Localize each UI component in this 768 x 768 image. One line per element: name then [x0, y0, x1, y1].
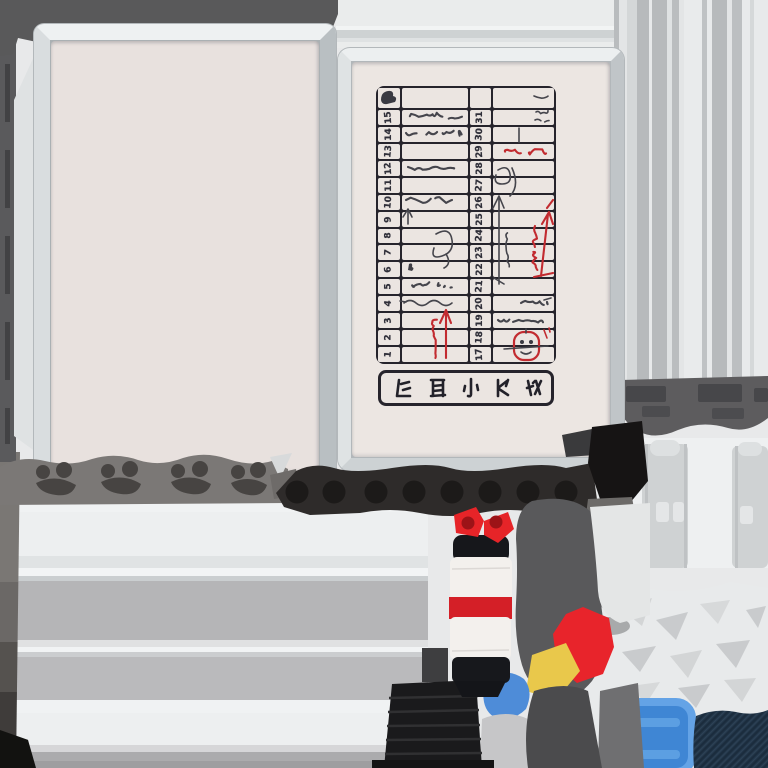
handwriting-scribble	[534, 96, 548, 98]
left-light-wedge	[14, 52, 36, 452]
block-base	[372, 760, 494, 768]
marker-base	[452, 657, 510, 683]
marker-red-band	[449, 597, 512, 619]
handwriting-scribble	[521, 301, 548, 305]
calendar-title-row	[378, 370, 554, 406]
handwriting-scribble	[412, 282, 454, 287]
title-glyphs	[381, 373, 551, 403]
dark-blob-bottom	[526, 686, 602, 768]
red-up-arrow-left	[440, 310, 451, 358]
handwriting-scribble	[536, 111, 548, 114]
marker-body-upper	[450, 557, 512, 601]
handwriting-scribble	[535, 119, 549, 122]
calendar-board: 1531143013291228112710269258247236225214…	[338, 48, 624, 471]
whiteboard-surface	[51, 41, 319, 473]
texture-atlas-canvas: 1531143013291228112710269258247236225214…	[0, 0, 768, 768]
handwriting-scribble	[505, 233, 509, 268]
title-glyph-2	[431, 380, 445, 396]
black-blob	[588, 421, 648, 503]
mid-gray-blob	[598, 683, 644, 768]
marker-body-lower	[450, 617, 511, 659]
wavy-line	[400, 301, 452, 306]
marker-pen	[440, 505, 522, 705]
denim-patch	[693, 710, 768, 768]
small-mark	[408, 263, 414, 271]
loop-doodle-left	[433, 231, 452, 268]
title-glyph-3	[464, 379, 478, 396]
aluminum-pillar-stripes	[610, 0, 768, 392]
calendar-paper: 1531143013291228112710269258247236225214…	[352, 62, 610, 457]
loop-doodle-right	[495, 168, 515, 196]
paw-pad-strip	[0, 445, 290, 515]
red-circled-glyph	[504, 328, 550, 360]
long-up-arrow	[493, 196, 504, 284]
title-glyph-5	[527, 381, 541, 395]
handwriting-scribble	[498, 320, 543, 323]
handwriting-scribble	[406, 197, 452, 203]
trim-dash-line	[5, 64, 10, 444]
title-glyph-1	[397, 380, 410, 396]
handwriting-scribble	[406, 131, 462, 136]
handwriting-scribble	[533, 226, 538, 270]
small-up-arrow	[403, 209, 412, 224]
dash-mark	[544, 298, 551, 300]
handwriting-scribble	[505, 149, 546, 154]
handwriting-scribble	[410, 113, 462, 119]
handwriting-scribble	[432, 320, 437, 358]
marker-tip	[454, 681, 506, 697]
title-glyph-4	[498, 380, 508, 396]
top-panel-bands	[336, 0, 614, 48]
left-dark-trim	[0, 0, 16, 462]
header-glyph	[381, 91, 396, 104]
calendar-annotations	[376, 86, 556, 364]
handwriting-scribble	[408, 167, 454, 170]
